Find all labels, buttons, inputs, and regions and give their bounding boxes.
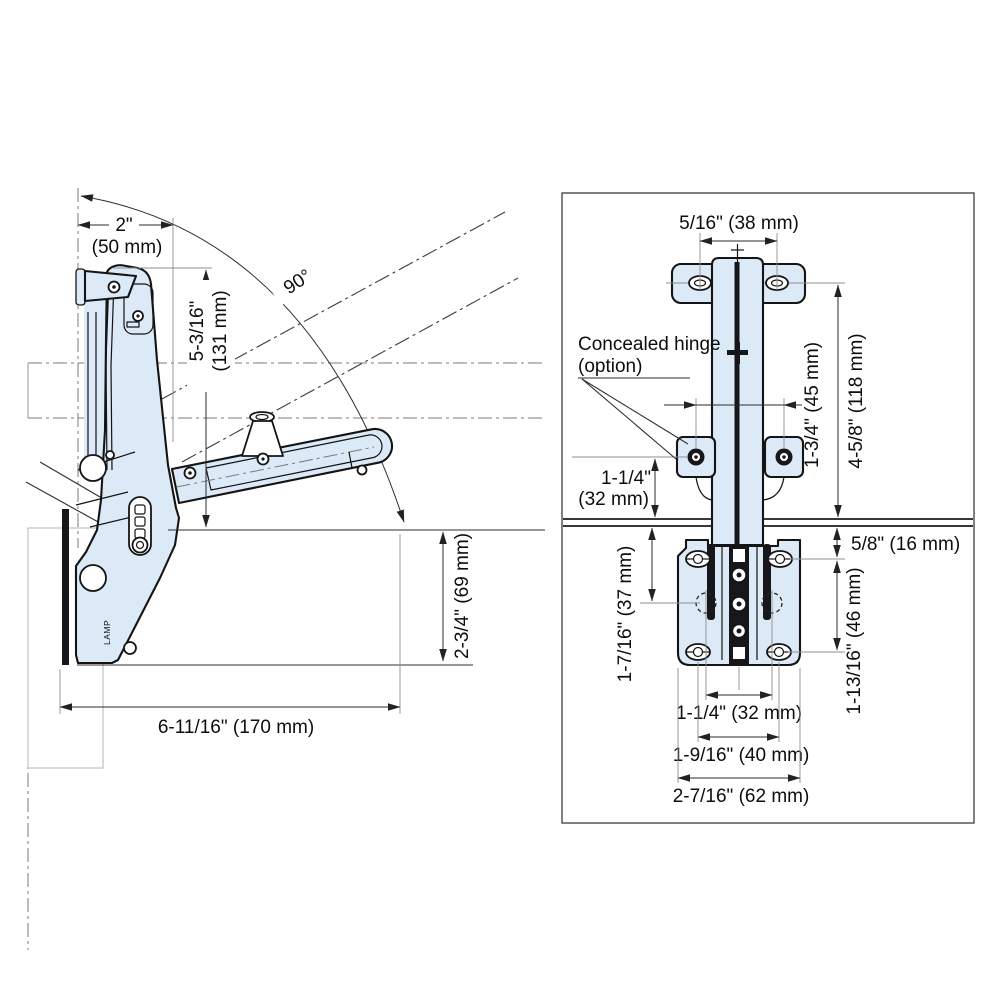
dim-body-upper-label: 1-7/16" (37 mm) bbox=[615, 546, 636, 683]
side-view: 90° bbox=[26, 188, 545, 950]
dim-lower-height: 2-3/4" (69 mm) bbox=[452, 533, 473, 659]
angle-label-group: 90° bbox=[267, 255, 326, 306]
dim-top-width-mm: (50 mm) bbox=[92, 237, 163, 258]
base-assembly bbox=[678, 540, 800, 665]
dim-screw-spacing-label: 1-3/4" (45 mm) bbox=[802, 342, 823, 468]
dim-upper-height-mm: (131 mm) bbox=[210, 290, 231, 371]
dim-bottom-mid-label: 1-9/16" (40 mm) bbox=[673, 745, 810, 766]
dim-top-clearance: 5/8" (16 mm) bbox=[790, 528, 960, 559]
technical-drawing-page: 90° bbox=[0, 0, 1000, 1000]
dim-plate-offset-in: 1-1/4" bbox=[601, 468, 651, 489]
front-view: Concealed hinge (option) 5/16" (38 mm) 1… bbox=[562, 193, 974, 823]
brand-mark: LAMP bbox=[102, 620, 112, 645]
dim-plate-offset: 1-1/4" (32 mm) bbox=[578, 459, 655, 517]
note-line2: (option) bbox=[578, 356, 642, 377]
panel-band bbox=[563, 519, 973, 526]
dim-overall-height-label: 4-5/8" (118 mm) bbox=[846, 333, 867, 468]
dim-bottom-outer-label: 2-7/16" (62 mm) bbox=[673, 786, 810, 807]
dim-total-depth: 6-11/16" (170 mm) bbox=[158, 717, 314, 738]
dim-plate-offset-mm: (32 mm) bbox=[578, 489, 649, 510]
hinge-strap-channel bbox=[712, 244, 763, 547]
shelf-bracket bbox=[242, 412, 283, 465]
note-line1: Concealed hinge bbox=[578, 334, 721, 355]
dim-top-clearance-label: 5/8" (16 mm) bbox=[851, 534, 960, 555]
dim-overall-height: 4-5/8" (118 mm) bbox=[838, 285, 867, 517]
dim-body-lower-label: 1-13/16" (46 mm) bbox=[844, 567, 865, 714]
top-cap bbox=[76, 269, 85, 305]
dim-lower-height: 2-3/4" (69 mm) bbox=[443, 532, 473, 661]
arm-screw bbox=[358, 466, 367, 475]
link-pivot-upper bbox=[80, 455, 106, 481]
link-pivot-lower bbox=[80, 565, 106, 591]
dim-slot-spacing-label: 5/16" (38 mm) bbox=[679, 213, 799, 234]
dim-upper-height-in: 5-3/16" bbox=[187, 301, 208, 362]
dim-bottom-inner-label: 1-1/4" (32 mm) bbox=[676, 703, 802, 724]
hinge-body: LAMP bbox=[76, 265, 196, 663]
dim-top-width-in: 2" bbox=[115, 215, 132, 236]
technical-drawing: 90° bbox=[0, 0, 1000, 1000]
foot-hole bbox=[124, 642, 136, 654]
